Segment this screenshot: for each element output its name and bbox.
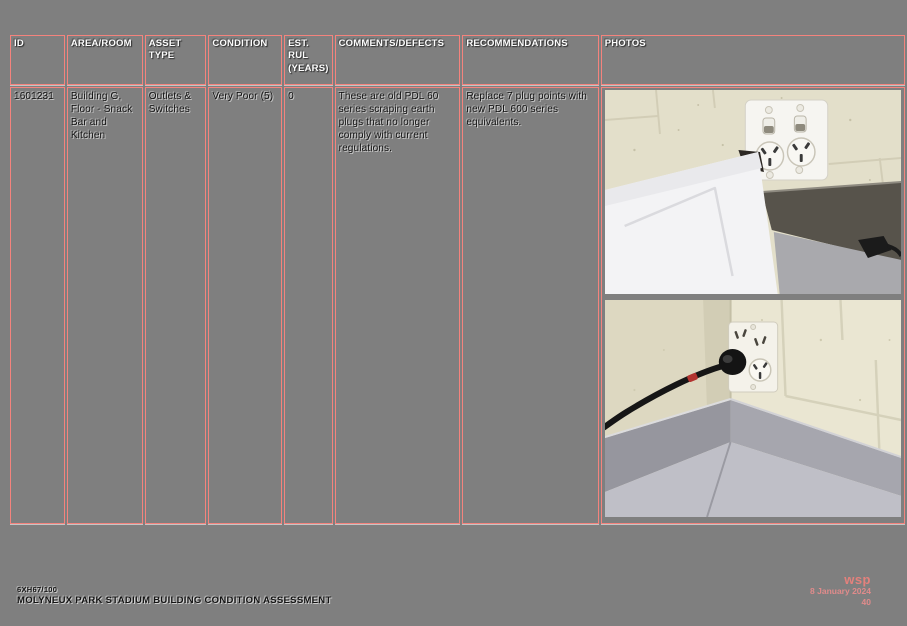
header-asset-type: ASSET TYPE [145, 35, 207, 85]
header-photos: PHOTOS [601, 35, 905, 85]
photo-outlet-with-plug [605, 300, 901, 517]
report-page: ID AREA/ROOM ASSET TYPE CONDITION EST. R… [0, 0, 907, 626]
cell-comments-defects: These are old PDL 60 series scraping ear… [335, 87, 461, 524]
switch-left [763, 118, 775, 134]
header-id: ID [10, 35, 65, 85]
switch-right [794, 116, 806, 132]
cell-asset-type: Outlets & Switches [145, 87, 207, 524]
document-title: MOLYNEUX PARK STADIUM BUILDING CONDITION… [17, 595, 332, 607]
cell-photos [601, 87, 905, 524]
condition-assessment-table: ID AREA/ROOM ASSET TYPE CONDITION EST. R… [8, 33, 907, 526]
socket-lower-right [749, 359, 771, 381]
cell-est-rul-years: 0 [284, 87, 332, 524]
header-area-room: AREA/ROOM [67, 35, 143, 85]
cell-id: 1601231 [10, 87, 65, 524]
footer-left: 6XH67/100 MOLYNEUX PARK STADIUM BUILDING… [17, 584, 332, 607]
cell-condition-very-poor: Very Poor (5) [208, 87, 282, 524]
footer-right: wsp 8 January 2024 40 [810, 574, 871, 608]
header-est-rul: EST. RUL (YEARS) [284, 35, 332, 85]
photo-outlets-above-freezer [605, 90, 901, 294]
header-recommendations: RECOMMENDATIONS [462, 35, 598, 85]
table-row: 1601231 Building G, Floor - Snack Bar an… [10, 87, 905, 524]
footer-date: 8 January 2024 [810, 586, 871, 597]
cell-recommendations: Replace 7 plug points with new PDL 600 s… [462, 87, 598, 524]
header-condition: CONDITION [208, 35, 282, 85]
table-header-row: ID AREA/ROOM ASSET TYPE CONDITION EST. R… [10, 35, 905, 85]
project-number: 6XH67/100 [17, 584, 332, 595]
page-number: 40 [810, 597, 871, 608]
header-comments-defects: COMMENTS/DEFECTS [335, 35, 461, 85]
cell-area-room: Building G, Floor - Snack Bar and Kitche… [67, 87, 143, 524]
socket-right [787, 138, 814, 166]
wsp-logo: wsp [810, 574, 871, 586]
